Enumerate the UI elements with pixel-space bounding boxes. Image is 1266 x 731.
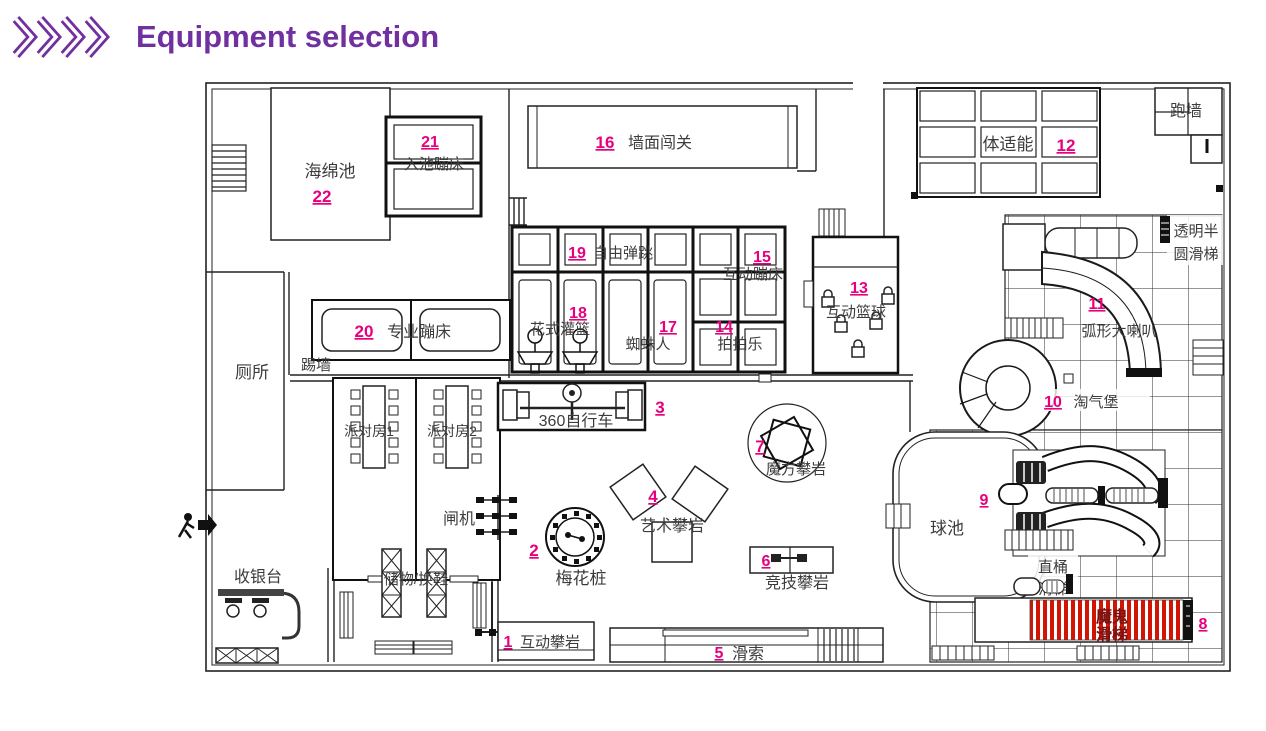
stairs-topleft — [212, 145, 246, 191]
toilet-label: 厕所 — [235, 363, 269, 382]
num-18: 18 — [569, 305, 587, 322]
party-room-2-label: 派对房2 — [427, 423, 477, 439]
num-15: 15 — [753, 249, 771, 266]
bike-360-label: 360自行车 — [539, 412, 614, 430]
num-14: 14 — [715, 319, 733, 336]
pool-entry-trampoline-label: 入池蹦床 — [404, 156, 464, 173]
pat-pat-label: 拍拍乐 — [717, 336, 762, 353]
ball-pool-label: 球池 — [930, 519, 964, 538]
gate-label: 闸机 — [443, 510, 475, 528]
art-climbing — [610, 464, 728, 562]
num-17: 17 — [659, 319, 677, 336]
run-wall: 跑墙 — [1155, 88, 1223, 192]
sport-climbing-label: 竞技攀岩 — [765, 574, 829, 592]
kick-wall-label: 踢墙 — [301, 357, 331, 374]
castle-structure: 透明半 圆滑梯 11 弧形大喇叭 — [886, 215, 1223, 662]
sport-climbing: 6 竞技攀岩 — [750, 547, 833, 592]
num-7: 7 — [755, 437, 764, 456]
art-climbing-label: 艺术攀岩 — [640, 517, 704, 535]
free-bounce-label: 自由弹跳 — [593, 245, 653, 262]
sponge-pool-label: 海绵池 — [305, 162, 356, 181]
fitness-area: 体适能 12 — [911, 88, 1100, 199]
num-22: 22 — [313, 187, 332, 206]
interactive-climbing-label: 互动攀岩 — [520, 634, 580, 651]
party-room-1-label: 派对房1 — [344, 423, 394, 439]
devil-slide-label-1: 魔鬼 — [1096, 607, 1128, 626]
page: Equipment selection — [0, 0, 1266, 731]
pro-trampoline-label: 专业蹦床 — [387, 323, 451, 341]
storage-label: 储物/换鞋 — [384, 571, 448, 588]
plum-piles-label: 梅花桩 — [556, 569, 607, 588]
num-20: 20 — [355, 322, 374, 341]
pro-trampoline: 20 专业蹦床 — [312, 300, 510, 360]
pool-entry-trampoline: 21 入池蹦床 — [386, 117, 481, 216]
num-5: 5 — [715, 645, 724, 662]
party-rooms: 派对房1 派对房2 — [333, 378, 500, 582]
interactive-basketball-label: 互动篮球 — [826, 303, 886, 321]
run-wall-label: 跑墙 — [1170, 102, 1202, 120]
num-11: 11 — [1089, 296, 1106, 313]
num-3: 3 — [655, 398, 664, 417]
transparent-slide-label-2: 圆滑梯 — [1173, 246, 1218, 263]
cashier-label: 收银台 — [234, 568, 282, 586]
num-2: 2 — [529, 541, 538, 560]
floor-plan: 海绵池 22 21 入池蹦床 16 墙面闯关 — [0, 0, 1266, 731]
zipline: 5 滑索 — [610, 628, 883, 663]
interactive-climbing: 1 互动攀岩 — [498, 622, 594, 660]
interactive-trampoline-label: 互动蹦床 — [723, 266, 783, 283]
num-21: 21 — [421, 134, 439, 151]
num-13: 13 — [850, 280, 868, 297]
barrel-slide-label-1: 直桶 — [1038, 559, 1068, 576]
fitness-label: 体适能 — [983, 135, 1034, 154]
naughty-castle-label: 淘气堡 — [1073, 394, 1118, 411]
cube-climbing: 7 魔方攀岩 — [748, 404, 826, 482]
entrance-icon — [179, 513, 217, 538]
devil-slide-label-2: 滑梯 — [1096, 625, 1128, 644]
num-8: 8 — [1199, 616, 1208, 633]
wall-challenge-label: 墙面闯关 — [628, 134, 692, 152]
spiderman-label: 蜘蛛人 — [625, 336, 670, 353]
num-1: 1 — [504, 634, 513, 651]
num-16: 16 — [596, 133, 615, 152]
bike-360: 360自行车 3 — [498, 383, 665, 430]
devil-slide: 魔鬼 滑梯 8 — [975, 598, 1208, 644]
sponge-pool: 海绵池 22 — [271, 88, 390, 240]
horn-slide-label: 弧形大喇叭 — [1081, 323, 1156, 340]
num-9: 9 — [980, 492, 989, 509]
zipline-label: 滑索 — [732, 645, 764, 663]
num-10: 10 — [1044, 394, 1062, 411]
num-4: 4 — [648, 487, 658, 506]
wall-challenge: 16 墙面闯关 — [528, 106, 797, 168]
fancy-dunk-label: 花式灌篮 — [530, 320, 590, 338]
num-19: 19 — [568, 245, 586, 262]
cashier: 收银台 — [216, 568, 299, 663]
transparent-slide-label-1: 透明半 — [1173, 223, 1218, 240]
num-12: 12 — [1057, 136, 1076, 155]
cube-climbing-label: 魔方攀岩 — [766, 461, 826, 478]
wall-post — [759, 374, 771, 382]
plum-piles: 2 梅花桩 — [529, 508, 606, 588]
num-6: 6 — [762, 553, 771, 570]
top-wall-gap — [853, 78, 883, 92]
